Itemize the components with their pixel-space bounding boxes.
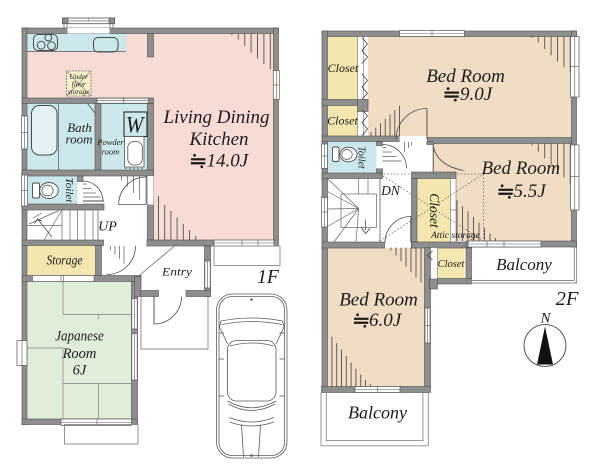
- svg-text:Powder: Powder: [96, 137, 124, 147]
- svg-text:Closet: Closet: [327, 114, 358, 128]
- svg-text:Balcony: Balcony: [496, 255, 552, 274]
- svg-text:Bed Room: Bed Room: [481, 158, 560, 179]
- svg-text:Balcony: Balcony: [348, 403, 407, 423]
- svg-text:1F: 1F: [257, 267, 280, 288]
- svg-text:14.0J: 14.0J: [207, 151, 250, 172]
- svg-text:W: W: [126, 112, 145, 137]
- svg-text:Japanese: Japanese: [55, 329, 104, 345]
- svg-text:9.0J: 9.0J: [460, 84, 494, 105]
- svg-text:Kitchen: Kitchen: [188, 129, 248, 150]
- svg-text:Toilet: Toilet: [356, 146, 367, 169]
- svg-text:Attic storage: Attic storage: [430, 231, 480, 241]
- svg-text:Bed Room: Bed Room: [339, 290, 418, 311]
- svg-text:2F: 2F: [556, 288, 579, 310]
- svg-text:Toilet: Toilet: [63, 178, 75, 204]
- svg-text:Storage: Storage: [47, 254, 83, 269]
- svg-text:6J: 6J: [73, 363, 87, 379]
- svg-text:Closet: Closet: [328, 61, 359, 75]
- svg-text:Room: Room: [62, 346, 97, 362]
- svg-text:Entry: Entry: [161, 265, 193, 279]
- svg-text:Closet: Closet: [438, 259, 466, 270]
- svg-text:5.5J: 5.5J: [514, 181, 548, 202]
- svg-text:Living Dining: Living Dining: [162, 107, 269, 128]
- svg-text:room: room: [66, 132, 93, 147]
- svg-text:storage: storage: [68, 88, 90, 96]
- svg-text:room: room: [102, 147, 120, 157]
- svg-text:Closet: Closet: [427, 193, 442, 229]
- svg-text:UP: UP: [98, 220, 117, 235]
- svg-text:6.0J: 6.0J: [369, 310, 403, 331]
- svg-text:DN: DN: [380, 183, 401, 198]
